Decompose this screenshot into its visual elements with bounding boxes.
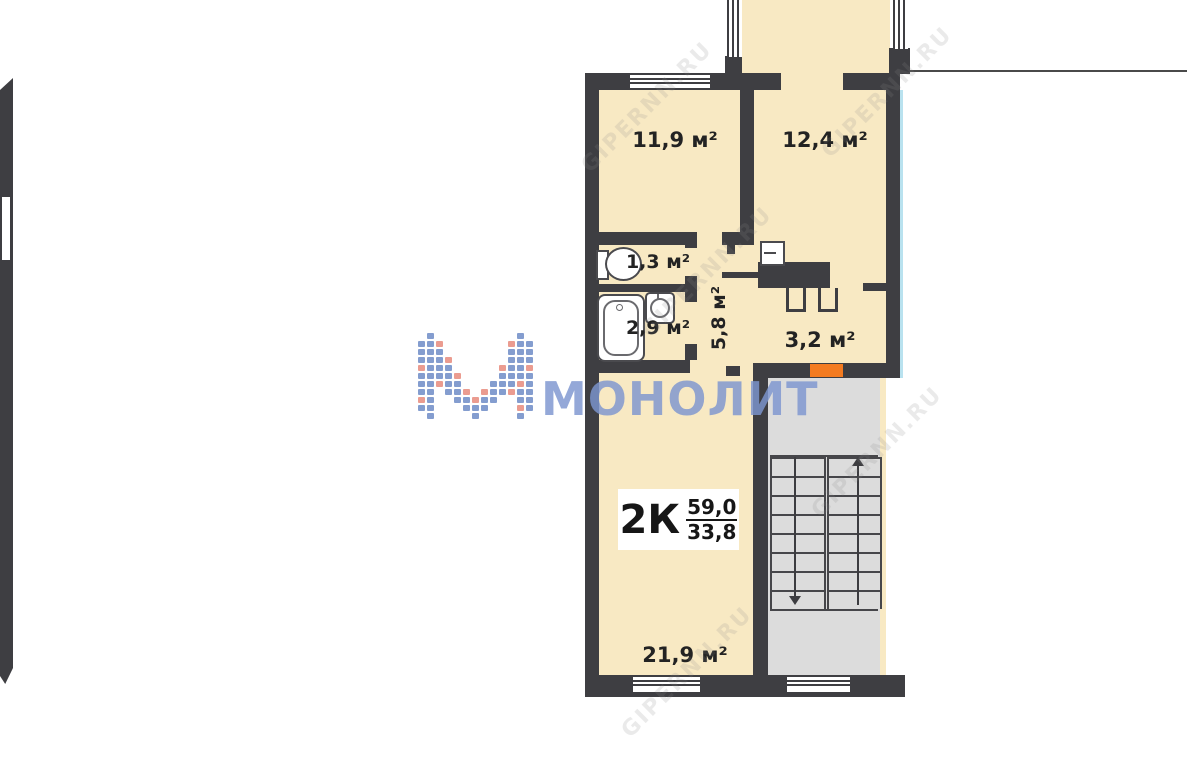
left-neighbor-wall — [0, 78, 13, 684]
balcony-window-left — [727, 0, 742, 57]
bathtub-drain — [616, 304, 623, 311]
balcony-door-opening — [781, 73, 843, 90]
brand-name: МОНОЛИТ — [541, 372, 819, 426]
stairs-down-arrow-icon — [789, 596, 801, 605]
wall-bedroom-bottom-left — [585, 232, 688, 245]
site-boundary-line — [908, 70, 1187, 72]
left-neighbor-window — [2, 197, 10, 260]
bath-sink-tap — [657, 294, 659, 299]
apartment-areas: 59,0 33,8 — [686, 496, 737, 544]
stairwell-window — [787, 677, 850, 692]
apartment-area-total: 59,0 — [686, 496, 737, 521]
balcony-post-left — [725, 56, 742, 74]
wall-wc-right-a — [685, 232, 697, 248]
kitchen-sink-mark — [764, 252, 776, 254]
brand-logo — [418, 333, 535, 421]
apartment-area-living: 33,8 — [687, 521, 736, 544]
kitchen-sink-icon — [760, 241, 785, 266]
apartment-type: 2К — [620, 500, 681, 540]
wall-kitchen-bottom-stub — [863, 283, 886, 291]
kitchen-counter-edge — [722, 272, 762, 278]
stairs-flight-left — [770, 457, 826, 609]
balcony-window-right — [893, 0, 908, 49]
apartment-summary: 2К 59,0 33,8 — [618, 489, 739, 550]
kitchen-chair-icon-1 — [786, 288, 806, 312]
room-label-entry-hall: 3,2 м² — [780, 326, 860, 354]
floorplan-canvas: 11,9 м² 12,4 м² 1,3 м² 2,9 м² 5,8 м² 3,2… — [0, 0, 1200, 773]
right-wall-blue-line — [900, 90, 903, 378]
stairs-down-arrow-stem — [794, 457, 796, 598]
balcony-floor — [742, 0, 890, 73]
kitchen-chair-icon-2 — [818, 288, 838, 312]
room-label-wc: 1,3 м² — [628, 250, 688, 274]
wall-right — [886, 73, 900, 378]
